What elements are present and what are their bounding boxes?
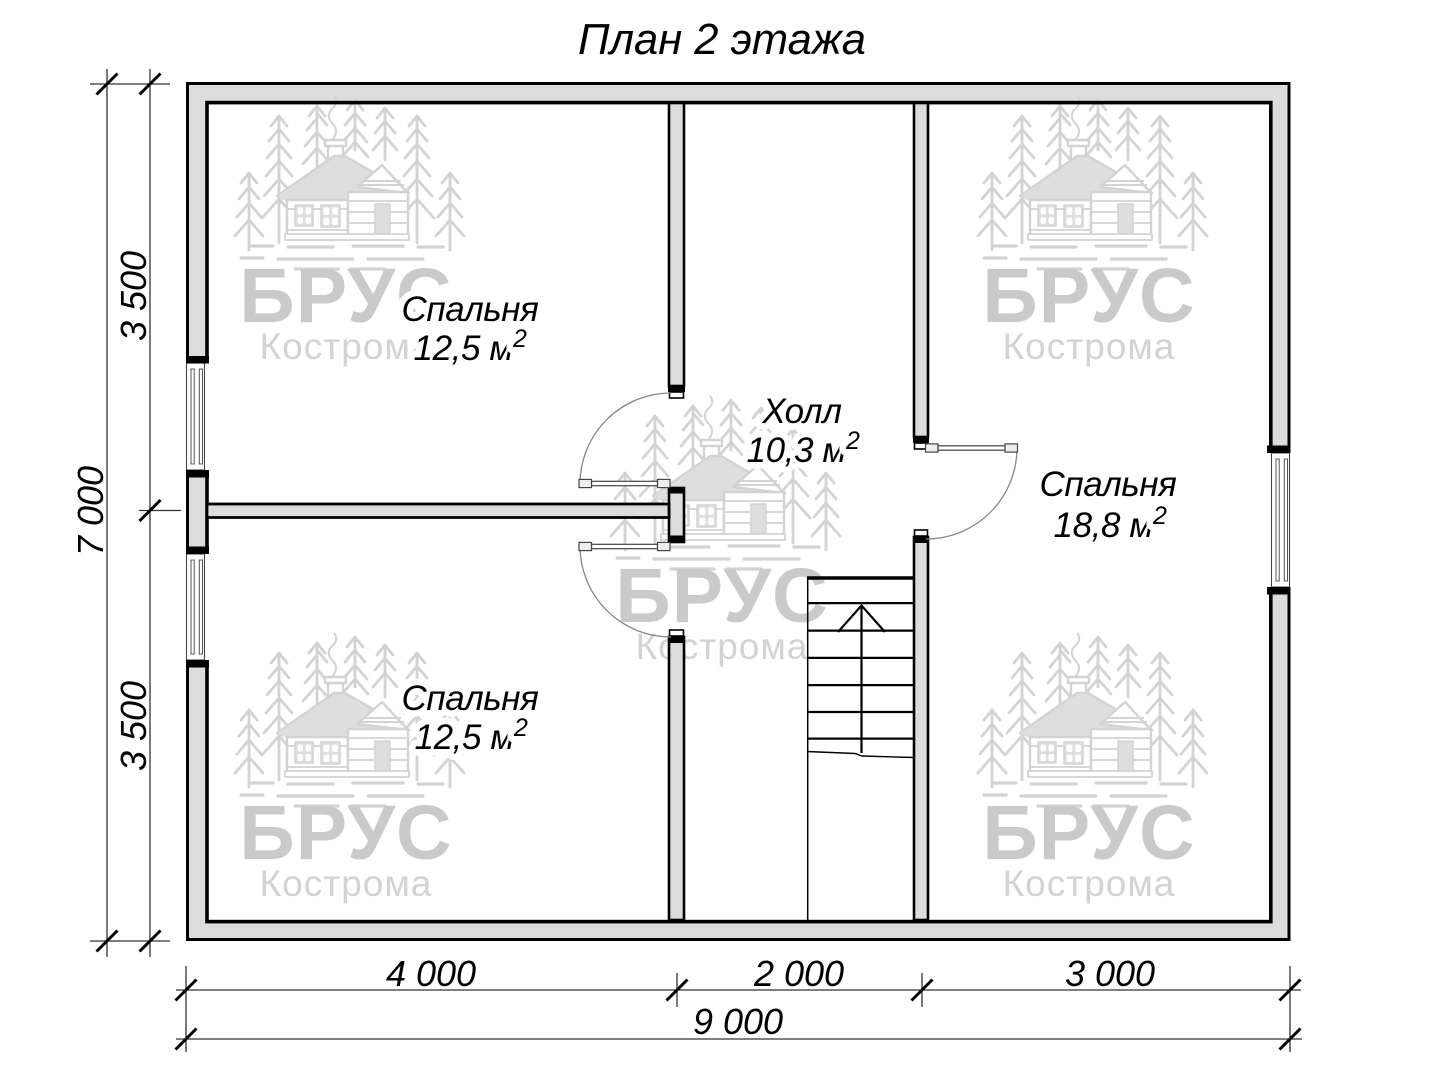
svg-text:Спальня: Спальня [1040, 465, 1177, 504]
svg-text:12,5 м2: 12,5 м2 [414, 325, 527, 368]
svg-text:10,3 м2: 10,3 м2 [747, 427, 860, 470]
svg-text:План 2 этажа: План 2 этажа [578, 16, 866, 64]
svg-text:9 000: 9 000 [693, 1001, 783, 1042]
svg-text:3 500: 3 500 [113, 251, 154, 341]
svg-text:18,8 м2: 18,8 м2 [1054, 502, 1167, 545]
svg-text:2 000: 2 000 [753, 953, 844, 994]
svg-text:Спальня: Спальня [402, 679, 539, 718]
svg-text:4 000: 4 000 [386, 953, 476, 994]
svg-text:12,5 м2: 12,5 м2 [415, 714, 528, 757]
svg-text:Холл: Холл [761, 392, 842, 431]
svg-text:3 000: 3 000 [1065, 953, 1155, 994]
svg-text:3 500: 3 500 [113, 681, 154, 771]
svg-text:Спальня: Спальня [402, 290, 539, 329]
svg-text:7 000: 7 000 [70, 466, 111, 556]
